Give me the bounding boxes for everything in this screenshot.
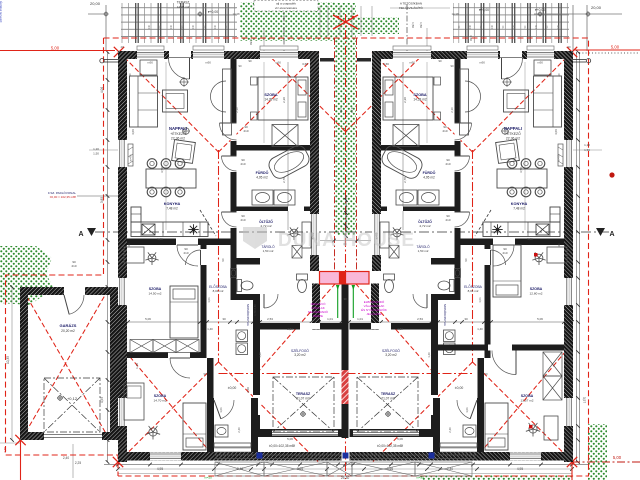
svg-text:20,20 m2: 20,20 m2 xyxy=(61,329,75,333)
svg-text:1,80: 1,80 xyxy=(527,237,533,241)
svg-text:1,01: 1,01 xyxy=(327,317,333,321)
svg-text:m1,50: m1,50 xyxy=(375,126,379,134)
svg-text:240: 240 xyxy=(557,24,560,29)
svg-text:14,50 m2: 14,50 m2 xyxy=(149,291,162,295)
svg-text:2,70: 2,70 xyxy=(3,447,7,453)
svg-text:5,00: 5,00 xyxy=(613,455,622,460)
svg-text:5,06: 5,06 xyxy=(388,454,394,458)
svg-text:3,85: 3,85 xyxy=(100,197,104,203)
svg-text:SZOBA: SZOBA xyxy=(264,93,278,97)
svg-text:▾+0,00: ▾+0,00 xyxy=(535,8,545,12)
svg-text:240: 240 xyxy=(469,24,472,29)
svg-text:5,06: 5,06 xyxy=(297,454,303,458)
svg-text:90: 90 xyxy=(450,64,454,68)
svg-text:3,66: 3,66 xyxy=(297,467,303,471)
svg-text:1,50: 1,50 xyxy=(584,148,590,152)
svg-text:SZOBA: SZOBA xyxy=(154,394,167,398)
svg-text:±0,00: ±0,00 xyxy=(455,386,464,390)
svg-text:4,06: 4,06 xyxy=(554,129,558,135)
svg-text:±0,00=102,35 mBf: ±0,00=102,35 mBf xyxy=(269,444,295,448)
svg-text:7,48 m2: 7,48 m2 xyxy=(513,207,525,211)
svg-text:3,20 m2: 3,20 m2 xyxy=(294,353,306,357)
svg-text:▾+0,00: ▾+0,00 xyxy=(208,10,218,14)
svg-text:RÉSZE: RÉSZE xyxy=(313,313,323,318)
svg-text:14,38 m2: 14,38 m2 xyxy=(264,98,278,102)
svg-text:FELÜLVILÁGÍTÓ: FELÜLVILÁGÍTÓ xyxy=(399,5,423,10)
svg-text:210: 210 xyxy=(502,251,507,255)
svg-text:1,80: 1,80 xyxy=(157,237,163,241)
svg-text:2,53: 2,53 xyxy=(417,317,423,321)
svg-text:5,06: 5,06 xyxy=(287,437,293,441)
svg-text:8,04 m2: 8,04 m2 xyxy=(468,289,479,293)
svg-text:1,01: 1,01 xyxy=(478,297,482,303)
svg-text:SZOBA: SZOBA xyxy=(413,93,427,97)
svg-text:240: 240 xyxy=(535,24,538,29)
svg-text:m90: m90 xyxy=(147,61,153,65)
svg-text:m90: m90 xyxy=(275,61,281,65)
svg-text:30: 30 xyxy=(122,328,126,332)
svg-text:5,06: 5,06 xyxy=(145,317,151,321)
svg-text:FÜRDŐ: FÜRDŐ xyxy=(256,170,269,175)
svg-text:+ÉTKEZŐ: +ÉTKEZŐ xyxy=(505,131,521,136)
svg-text:±0,00: ±0,00 xyxy=(228,386,237,390)
svg-text:240: 240 xyxy=(148,24,151,29)
svg-text:2,40: 2,40 xyxy=(63,456,69,460)
svg-text:14,38: 14,38 xyxy=(233,12,240,16)
svg-text:1,70·2,80: 1,70·2,80 xyxy=(253,304,257,316)
svg-text:A: A xyxy=(78,231,83,238)
svg-text:3,66: 3,66 xyxy=(302,62,308,66)
svg-text:210: 210 xyxy=(442,129,447,133)
svg-text:m90: m90 xyxy=(537,61,543,65)
svg-text:m=90: m=90 xyxy=(557,154,561,161)
svg-text:2,40: 2,40 xyxy=(448,427,452,433)
svg-text:2,53: 2,53 xyxy=(397,327,403,331)
svg-text:5,06: 5,06 xyxy=(397,437,403,441)
svg-text:m=90: m=90 xyxy=(129,154,133,161)
svg-text:40: 40 xyxy=(557,73,561,77)
svg-text:m90: m90 xyxy=(205,61,211,65)
svg-text:240: 240 xyxy=(491,24,494,29)
svg-text:2,53: 2,53 xyxy=(267,317,273,321)
svg-text:2,40: 2,40 xyxy=(237,427,241,433)
svg-text:1,01: 1,01 xyxy=(219,407,223,413)
svg-text:240: 240 xyxy=(170,24,173,29)
svg-text:90: 90 xyxy=(438,59,442,63)
svg-text:1,40: 1,40 xyxy=(477,327,483,331)
svg-text:m90: m90 xyxy=(479,61,485,65)
svg-text:4,72 m2: 4,72 m2 xyxy=(419,224,430,228)
svg-text:m90: m90 xyxy=(409,61,415,65)
svg-text:3,66: 3,66 xyxy=(387,467,393,471)
svg-text:4,06: 4,06 xyxy=(100,87,104,93)
svg-text:MOSÓKONYHA: MOSÓKONYHA xyxy=(443,304,448,326)
svg-text:210: 210 xyxy=(71,264,76,268)
svg-text:4,95: 4,95 xyxy=(517,467,523,471)
svg-text:4,90: 4,90 xyxy=(100,287,104,293)
svg-text:3,50: 3,50 xyxy=(160,167,164,173)
svg-text:2,40: 2,40 xyxy=(237,467,243,471)
svg-text:1,70: 1,70 xyxy=(135,363,139,369)
svg-text:1,50 m2: 1,50 m2 xyxy=(418,249,429,253)
svg-text:5,00: 5,00 xyxy=(51,46,60,51)
svg-text:2,70: 2,70 xyxy=(403,177,407,183)
svg-text:A TETŐSÍKBAN: A TETŐSÍKBAN xyxy=(400,1,422,6)
svg-text:3,57: 3,57 xyxy=(582,397,586,403)
svg-text:240: 240 xyxy=(192,24,195,29)
svg-text:3,66: 3,66 xyxy=(383,62,389,66)
svg-text:2,40: 2,40 xyxy=(447,467,453,471)
svg-text:30: 30 xyxy=(343,297,347,301)
svg-text:1,20: 1,20 xyxy=(584,143,590,147)
svg-text:Építész tervező:: Építész tervező: xyxy=(0,1,4,23)
svg-text:2,25: 2,25 xyxy=(75,461,81,465)
svg-text:90: 90 xyxy=(238,64,242,68)
svg-text:FÜRDŐ: FÜRDŐ xyxy=(423,170,436,175)
svg-text:14,38: 14,38 xyxy=(452,12,459,16)
svg-text:1,01: 1,01 xyxy=(465,407,469,413)
svg-text:7,48 m2: 7,48 m2 xyxy=(166,207,178,211)
svg-text:8,04 m2: 8,04 m2 xyxy=(213,289,224,293)
svg-text:1,40: 1,40 xyxy=(427,352,431,358)
svg-text:±0,00 = 102,35 mBf: ±0,00 = 102,35 mBf xyxy=(50,195,76,199)
svg-text:2,70: 2,70 xyxy=(282,177,286,183)
svg-text:KONYHA: KONYHA xyxy=(164,202,181,206)
svg-text:14,38 m2: 14,38 m2 xyxy=(413,98,427,102)
svg-text:4,95: 4,95 xyxy=(157,467,163,471)
svg-text:+ÉTKEZŐ: +ÉTKEZŐ xyxy=(170,131,186,136)
svg-text:40: 40 xyxy=(557,243,561,247)
svg-text:1,50: 1,50 xyxy=(249,39,253,45)
svg-text:▾+0,00: ▾+0,00 xyxy=(479,8,489,12)
svg-text:13,57 m2: 13,57 m2 xyxy=(521,399,534,403)
svg-text:1,01: 1,01 xyxy=(207,297,211,303)
svg-text:210: 210 xyxy=(240,218,245,222)
svg-text:m=20: m=20 xyxy=(204,476,212,480)
svg-text:A: A xyxy=(609,231,614,238)
svg-text:4,95 m2: 4,95 m2 xyxy=(423,176,435,180)
svg-text:40: 40 xyxy=(120,45,124,49)
svg-text:m1,50: m1,50 xyxy=(310,126,314,134)
svg-text:1,40: 1,40 xyxy=(207,327,213,331)
svg-text:GARÁZS: GARÁZS xyxy=(60,323,77,328)
svg-text:MOSÓKONYHA: MOSÓKONYHA xyxy=(246,304,251,326)
svg-text:21,07 m2: 21,07 m2 xyxy=(381,397,395,401)
svg-text:2,20: 2,20 xyxy=(403,97,407,103)
svg-text:20,00: 20,00 xyxy=(591,5,602,10)
svg-text:2,53: 2,53 xyxy=(287,327,293,331)
svg-text:40: 40 xyxy=(567,45,571,49)
svg-text:30: 30 xyxy=(464,317,468,321)
svg-text:2,10: 2,10 xyxy=(235,107,239,113)
svg-text:SZOBA: SZOBA xyxy=(521,394,534,398)
svg-text:30: 30 xyxy=(563,328,567,332)
svg-text:90: 90 xyxy=(464,258,468,262)
svg-text:210: 210 xyxy=(445,162,450,166)
svg-text:1,50: 1,50 xyxy=(339,107,343,113)
svg-text:90: 90 xyxy=(203,372,207,376)
svg-text:21,07 m2: 21,07 m2 xyxy=(296,397,310,401)
svg-text:4,95: 4,95 xyxy=(100,397,104,403)
svg-text:TERASZ: TERASZ xyxy=(296,392,311,396)
svg-text:40: 40 xyxy=(128,73,132,77)
svg-text:3,20 m2: 3,20 m2 xyxy=(385,353,397,357)
svg-text:90: 90 xyxy=(248,59,252,63)
svg-text:2,20: 2,20 xyxy=(282,97,286,103)
svg-text:3,60: 3,60 xyxy=(469,35,473,41)
svg-text:210: 210 xyxy=(243,129,248,133)
svg-text:14,38 m2: 14,38 m2 xyxy=(177,5,190,9)
svg-text:+0,12: +0,12 xyxy=(67,396,78,401)
svg-text:±0,00=102,35 mBf: ±0,00=102,35 mBf xyxy=(377,444,403,448)
svg-text:12,80 m2: 12,80 m2 xyxy=(530,291,543,295)
svg-text:10,35: 10,35 xyxy=(6,356,10,364)
svg-text:210: 210 xyxy=(240,162,245,166)
svg-text:4,95 m2: 4,95 m2 xyxy=(256,176,268,180)
svg-text:90: 90 xyxy=(484,372,488,376)
svg-text:1,01: 1,01 xyxy=(357,317,363,321)
svg-text:1,20: 1,20 xyxy=(93,147,99,151)
svg-text:1,40: 1,40 xyxy=(258,352,262,358)
svg-text:240: 240 xyxy=(214,24,217,29)
svg-text:90: 90 xyxy=(221,258,225,262)
svg-text:3,50: 3,50 xyxy=(519,167,523,173)
svg-text:14,70 m2: 14,70 m2 xyxy=(154,399,167,403)
svg-text:22,36 m2: 22,36 m2 xyxy=(506,137,520,141)
svg-text:30: 30 xyxy=(222,317,226,321)
svg-text:alj a csapadék: alj a csapadék xyxy=(276,2,296,6)
svg-text:2,10: 2,10 xyxy=(450,107,454,113)
svg-text:DUNA HOUSE: DUNA HOUSE xyxy=(278,230,415,251)
svg-text:4,70: 4,70 xyxy=(350,107,354,113)
svg-text:25,30: 25,30 xyxy=(341,476,350,480)
svg-text:210: 210 xyxy=(183,251,188,255)
svg-text:1,50: 1,50 xyxy=(411,22,415,28)
svg-text:NAPPALI: NAPPALI xyxy=(504,126,522,131)
svg-text:m=20: m=20 xyxy=(416,476,424,480)
svg-text:TERASZ: TERASZ xyxy=(381,392,396,396)
svg-text:víz elvezetésére: víz elvezetésére xyxy=(275,6,298,10)
svg-text:TERASZ: TERASZ xyxy=(177,1,190,5)
svg-text:1,50 m2: 1,50 m2 xyxy=(263,249,274,253)
svg-text:40: 40 xyxy=(127,243,131,247)
svg-text:NAPPALI: NAPPALI xyxy=(169,126,187,131)
svg-text:210: 210 xyxy=(445,218,450,222)
svg-text:2,60: 2,60 xyxy=(246,387,250,393)
svg-text:1,50: 1,50 xyxy=(419,22,423,28)
svg-text:22,36 m2: 22,36 m2 xyxy=(171,137,185,141)
svg-text:1,50: 1,50 xyxy=(93,152,99,156)
svg-text:5,00: 5,00 xyxy=(611,45,620,50)
svg-text:4,06: 4,06 xyxy=(131,129,135,135)
svg-text:5,06: 5,06 xyxy=(537,317,543,321)
svg-text:KONYHA: KONYHA xyxy=(511,202,528,206)
svg-text:240: 240 xyxy=(513,24,516,29)
svg-text:20,00: 20,00 xyxy=(90,1,101,6)
svg-text:JELÖLÉSE: JELÖLÉSE xyxy=(366,311,381,316)
